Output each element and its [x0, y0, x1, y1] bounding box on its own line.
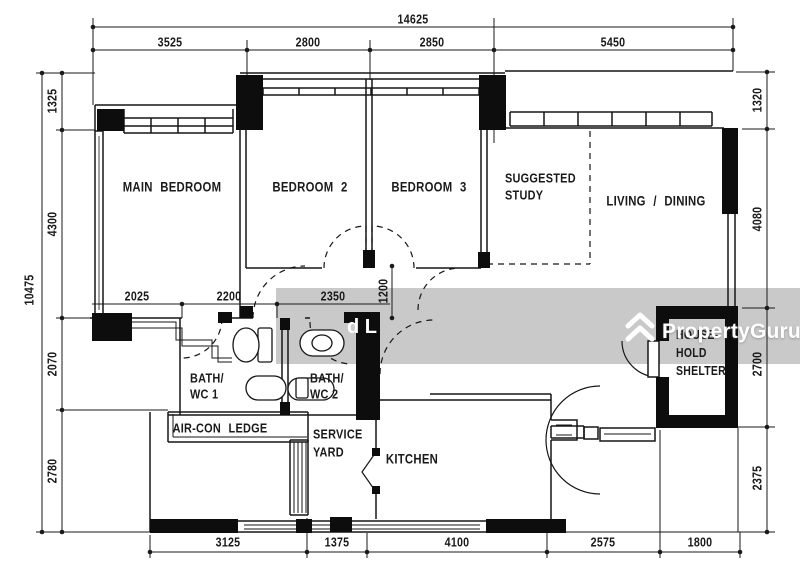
- room-label-household-shelter-3: SHELTER: [676, 364, 726, 378]
- dim-bottom-1: 3125: [216, 535, 241, 550]
- room-label-bath-wc-2-1: BATH/: [310, 371, 344, 386]
- dim-right-4: 2375: [750, 466, 765, 491]
- dim-left-overall: 10475: [22, 275, 37, 306]
- dim-left-2: 4300: [45, 212, 60, 237]
- room-label-bedroom-3: BEDROOM 3: [391, 180, 466, 195]
- room-label-bedroom-2: BEDROOM 2: [272, 180, 347, 195]
- dim-inner-3: 2350: [321, 289, 346, 304]
- toilet-bowl-1: [233, 328, 259, 362]
- floor-plan: 14625 3525 2800 2850 5450 10475 1325 430…: [0, 0, 800, 579]
- propertyguru-watermark-text: PropertyGuru: [662, 320, 800, 344]
- room-label-aircon-ledge: AIR-CON LEDGE: [173, 421, 268, 436]
- dim-top-4: 5450: [601, 35, 626, 50]
- floor-plan-drawing: [0, 0, 800, 579]
- room-label-household-shelter-2: HOLD: [676, 346, 707, 360]
- dim-left-3: 2070: [45, 352, 60, 377]
- dim-bottom-4: 2575: [591, 535, 616, 550]
- room-label-suggested-study-2: STUDY: [505, 188, 543, 203]
- dim-inner-4: 1200: [376, 279, 391, 304]
- dim-bottom-3: 4100: [445, 535, 470, 550]
- room-label-living-dining: LIVING / DINING: [606, 194, 705, 209]
- room-label-bath-wc-1-2: WC 1: [190, 387, 218, 402]
- dim-top-2: 2800: [296, 35, 321, 50]
- dim-right-3: 2700: [750, 352, 765, 377]
- dim-left-4: 2780: [45, 459, 60, 484]
- room-label-suggested-study-1: SUGGESTED: [505, 171, 576, 186]
- dim-inner-1: 2025: [125, 289, 150, 304]
- dim-bottom-5: 1800: [688, 535, 713, 550]
- room-label-service-yard-2: YARD: [313, 445, 344, 460]
- dim-top-3: 2850: [420, 35, 445, 50]
- room-label-bath-wc-2-2: WC 2: [310, 387, 338, 402]
- watermark-fragment-text: d L: [347, 316, 377, 339]
- room-label-main-bedroom: MAIN BEDROOM: [123, 180, 222, 195]
- dim-top-1: 3525: [158, 35, 183, 50]
- dim-bottom-2: 1375: [325, 535, 350, 550]
- room-label-kitchen: KITCHEN: [386, 452, 438, 467]
- propertyguru-logo-icon: [621, 306, 659, 350]
- dim-right-1: 1320: [750, 88, 765, 113]
- toilet-tank-1: [258, 328, 272, 362]
- dim-right-2: 4080: [750, 207, 765, 232]
- dim-inner-2: 2200: [217, 289, 242, 304]
- bathtub-fixture-left: [246, 376, 286, 400]
- dim-left-1: 1325: [45, 89, 60, 114]
- dim-top-overall: 14625: [398, 12, 429, 27]
- room-label-bath-wc-1-1: BATH/: [190, 371, 224, 386]
- room-label-service-yard-1: SERVICE: [313, 427, 363, 442]
